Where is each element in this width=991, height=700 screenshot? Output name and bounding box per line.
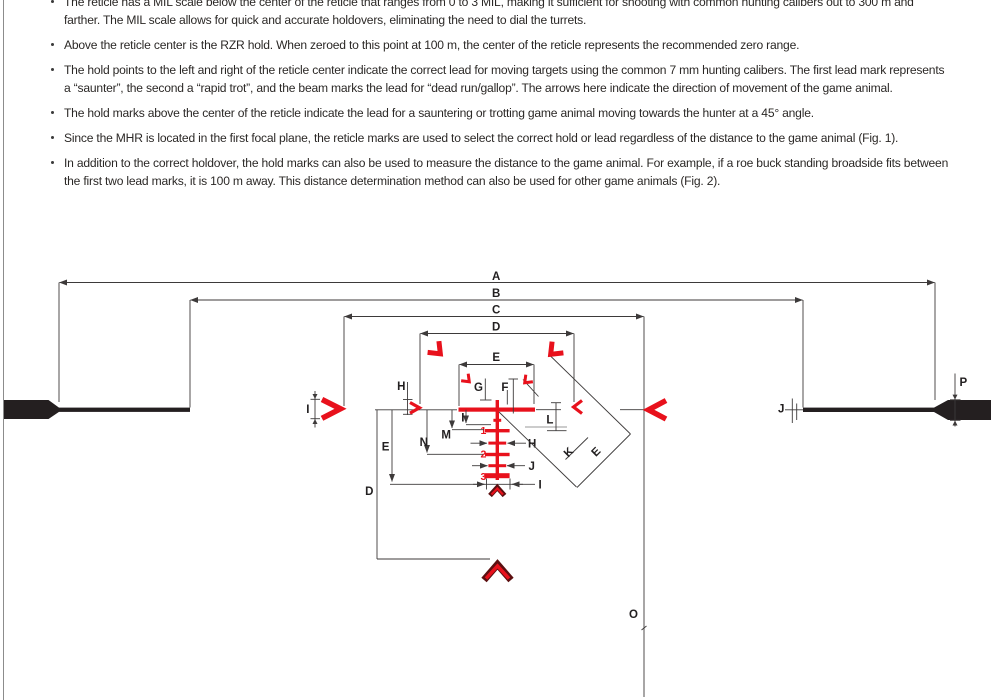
center-detail-dimensions: H G F L H J	[397, 379, 648, 473]
big-bottom-chevron-inner-icon	[486, 566, 509, 579]
dim-label-d: D	[492, 322, 500, 334]
dim-label-c: C	[492, 305, 500, 317]
right-thin-post	[803, 408, 934, 412]
dim-label-l: L	[546, 415, 553, 427]
dim-label-j-bar: J	[778, 404, 784, 416]
dim-label-m: M	[441, 430, 450, 442]
right-thick-post	[934, 400, 991, 420]
left-i-dimension: I	[306, 391, 320, 428]
dim-label-j-right: J	[529, 461, 535, 473]
dim-label-e-diagonal: E	[590, 445, 604, 459]
left-cascade-dimensions: D E N M I I	[365, 410, 541, 559]
dim-label-e: E	[492, 352, 500, 364]
reticle-dimension-diagram: A B C D E	[0, 0, 991, 700]
diagonal-dimensions: K E	[499, 356, 631, 488]
dim-label-g: G	[474, 382, 483, 394]
mil-number-3: 3	[481, 471, 487, 483]
reticle-crosshair: 1 2 3	[459, 400, 536, 483]
dim-label-i-bottom: I	[539, 480, 542, 492]
upper-right-45-arrow-icon	[545, 342, 563, 360]
dim-label-k-diagonal: K	[562, 445, 577, 460]
left-thick-post	[4, 400, 59, 419]
small-left-lead-arrow-icon	[410, 403, 420, 414]
small-right-lead-arrow-icon	[574, 401, 583, 414]
dim-label-n: N	[420, 437, 428, 449]
small-upper-left-45-arrow-icon	[461, 374, 473, 386]
dim-label-d-cascade: D	[365, 486, 373, 498]
dim-label-i-left: I	[306, 404, 309, 416]
upper-left-45-arrow-icon	[428, 341, 446, 359]
big-right-lead-arrow-icon	[649, 401, 667, 420]
left-thin-post	[59, 408, 190, 412]
vertical-mil-bar	[496, 400, 499, 480]
dim-label-p: P	[960, 377, 968, 389]
dim-label-o: O	[629, 609, 638, 621]
bottom-chevrons	[484, 488, 511, 581]
mil-number-1: 1	[481, 425, 487, 437]
big-left-lead-arrow-icon	[322, 400, 341, 419]
dim-label-e-cascade: E	[382, 442, 390, 454]
dim-label-i-cascade: I	[461, 413, 464, 425]
manual-page: The reticle has a MIL scale below the ce…	[0, 0, 991, 700]
dim-label-a: A	[492, 271, 500, 283]
dim-label-h-left: H	[397, 381, 405, 393]
dim-label-b: B	[492, 288, 500, 300]
dim-label-f: F	[501, 382, 508, 394]
